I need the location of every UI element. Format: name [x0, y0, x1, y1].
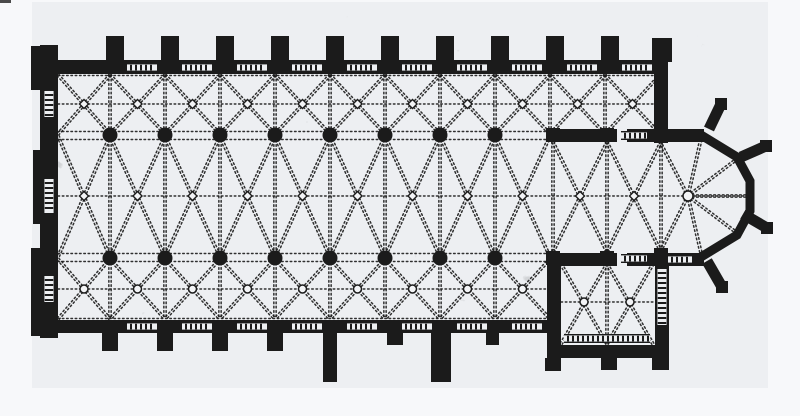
- scanned-church-floor-plan: [0, 0, 800, 416]
- floor-plan-svg: [0, 0, 800, 416]
- noise-layer-front: [36, 2, 704, 384]
- scan-corner-artifact: [0, 0, 11, 3]
